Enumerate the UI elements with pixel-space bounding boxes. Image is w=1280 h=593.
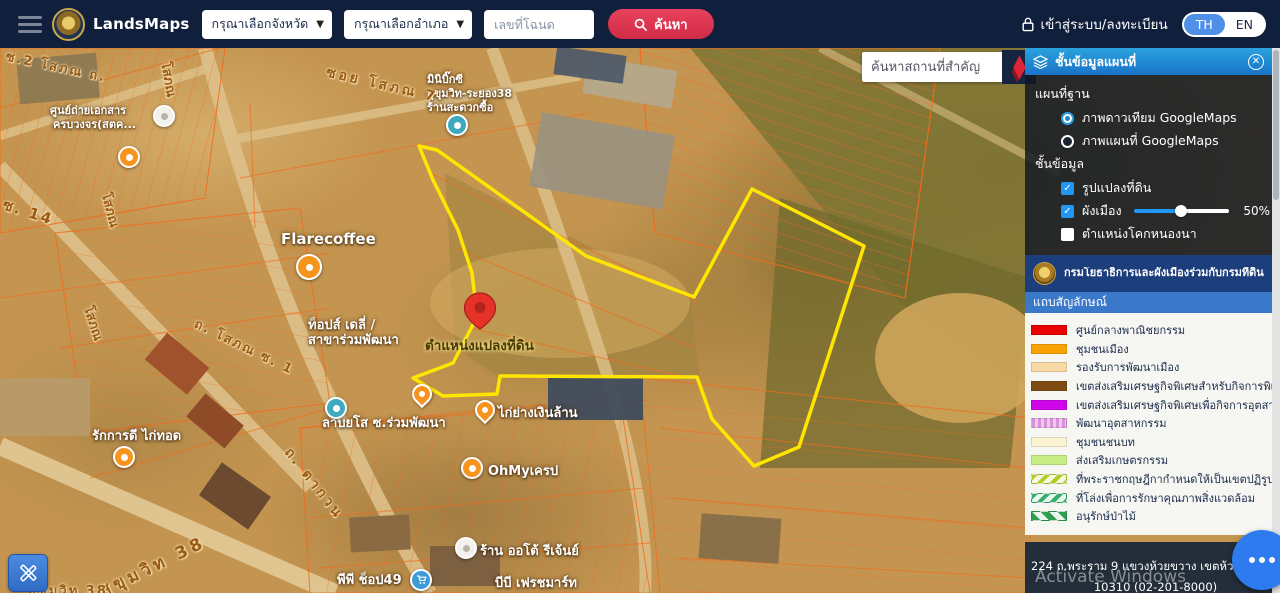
legend-row: อนุรักษ์ป่าไม้ — [1031, 507, 1274, 526]
legend-swatch — [1031, 400, 1067, 410]
app-title: LandsMaps — [93, 15, 190, 33]
legend-swatch — [1031, 418, 1067, 428]
panel-scrollbar[interactable] — [1272, 48, 1280, 593]
slider-thumb[interactable] — [1175, 205, 1187, 217]
cart-icon — [416, 575, 427, 585]
panel-body: แผนที่ฐาน ภาพดาวเทียม GoogleMaps ภาพแผนท… — [1025, 75, 1280, 255]
layers-icon — [1033, 55, 1048, 69]
legend-row: รองรับการพัฒนาเมือง — [1031, 358, 1274, 377]
deed-number-input[interactable] — [484, 10, 594, 39]
opacity-slider[interactable] — [1134, 209, 1230, 213]
crepe-shop-icon[interactable] — [461, 457, 483, 479]
legend-row: เขตส่งเสริมเศรษฐกิจพิเศษเพื่อกิจการอุตสา… — [1031, 395, 1274, 414]
checkbox-unchecked-icon[interactable] — [1061, 228, 1074, 241]
department-of-lands-logo — [52, 8, 85, 41]
province-select[interactable]: กรุณาเลือกจังหวัด ▼ — [202, 10, 332, 39]
legend-row: ศูนย์กลางพาณิชยกรรม — [1031, 321, 1274, 340]
login-register-link[interactable]: เข้าสู่ระบบ/ลงทะเบียน — [1021, 13, 1168, 35]
legend-row: เขตส่งเสริมเศรษฐกิจพิเศษสำหรับกิจการพิเศ… — [1031, 377, 1274, 396]
legend-swatch — [1031, 344, 1067, 354]
legend-list: ศูนย์กลางพาณิชยกรรม ชุมชนเมือง รองรับการ… — [1025, 313, 1280, 535]
menu-icon[interactable] — [18, 16, 42, 33]
lang-en-button[interactable]: EN — [1225, 14, 1264, 35]
legend-heading: แถบสัญลักษณ์ — [1025, 292, 1280, 313]
poi-label: ไก่ย่างเงินล้าน — [498, 402, 578, 423]
poi-label: OhMyเครป — [488, 460, 558, 481]
language-toggle: TH EN — [1182, 12, 1266, 37]
checkbox-checked-icon[interactable]: ✓ — [1061, 182, 1074, 195]
coffee-shop-icon[interactable] — [296, 254, 322, 280]
legend-swatch — [1031, 362, 1067, 372]
auto-shop-icon[interactable] — [455, 537, 477, 559]
supermarket-icon[interactable] — [325, 397, 347, 419]
chevron-down-icon: ▼ — [316, 19, 324, 30]
marker-label: ตำแหน่งแปลงที่ดิน — [425, 334, 534, 356]
legend-row: ที่โล่งเพื่อการรักษาคุณภาพสิ่งแวดล้อม — [1031, 488, 1274, 507]
base-map-option-map[interactable]: ภาพแผนที่ GoogleMaps — [1061, 131, 1270, 151]
copy-shop-icon[interactable] — [153, 105, 175, 127]
layer-option-parcels[interactable]: ✓ รูปแปลงที่ดิน — [1061, 178, 1270, 198]
layer-option-khok-nong-na[interactable]: ตำแหน่งโคกหนองนา — [1061, 224, 1270, 244]
legend-swatch — [1031, 493, 1067, 503]
banner-text: กรมโยธาธิการและผังเมืองร่วมกับกรมที่ดิน — [1064, 267, 1264, 280]
legend-swatch — [1031, 381, 1067, 391]
legend-swatch — [1031, 325, 1067, 335]
layer-option-city-plan[interactable]: ✓ ผังเมือง 50% — [1061, 201, 1270, 221]
fried-chicken-icon[interactable] — [113, 446, 135, 468]
radio-selected-icon[interactable] — [1061, 112, 1074, 125]
legend-swatch — [1031, 474, 1067, 484]
poi-label: ร้านสะดวกซื้อ — [427, 98, 493, 116]
legend-row: ชุมชนเมือง — [1031, 340, 1274, 359]
restaurant-icon[interactable] — [118, 146, 140, 168]
legend-swatch — [1031, 511, 1067, 521]
poi-label: สาขาร่วมพัฒนา — [308, 329, 399, 350]
shop-cart-icon[interactable] — [410, 569, 432, 591]
department-banner: กรมโยธาธิการและผังเมืองร่วมกับกรมที่ดิน — [1025, 255, 1280, 292]
poi-label: พีพี ช็อป49 — [337, 569, 402, 590]
legend-row: พัฒนาอุตสาหกรรม — [1031, 414, 1274, 433]
panel-title: ชั้นข้อมูลแผนที่ — [1055, 52, 1241, 72]
search-button[interactable]: ค้นหา — [608, 9, 713, 39]
convenience-store-icon[interactable] — [446, 114, 468, 136]
lock-icon — [1021, 16, 1035, 32]
close-icon[interactable]: ✕ — [1248, 54, 1264, 70]
poi-label: บีบี เฟรชมาร์ท — [495, 572, 577, 593]
chevron-down-icon: ▼ — [456, 19, 464, 30]
base-map-heading: แผนที่ฐาน — [1035, 84, 1270, 104]
measure-tool-button[interactable] — [8, 554, 48, 592]
measure-tools-icon — [17, 562, 39, 584]
lang-th-button[interactable]: TH — [1184, 14, 1225, 35]
layers-diamond-icon — [1013, 55, 1025, 79]
radio-unselected-icon[interactable] — [1061, 135, 1074, 148]
panel-header: ชั้นข้อมูลแผนที่ ✕ — [1025, 48, 1280, 75]
legend-row: ที่พระราชกฤษฎีกากำหนดให้เป็นเขตปฏิรูปที่… — [1031, 470, 1274, 489]
map-layers-panel: ชั้นข้อมูลแผนที่ ✕ แผนที่ฐาน ภาพดาวเทียม… — [1025, 48, 1280, 593]
legend-row: ส่งเสริมเกษตรกรรม — [1031, 451, 1274, 470]
poi-label: ครบวงจร(สตค... — [53, 115, 136, 133]
poi-label: Flarecoffee — [281, 230, 376, 248]
legend-swatch — [1031, 455, 1067, 465]
district-select[interactable]: กรุณาเลือกอำเภอ ▼ — [344, 10, 472, 39]
search-icon — [634, 18, 647, 31]
checkbox-checked-icon[interactable]: ✓ — [1061, 205, 1074, 218]
base-map-option-satellite[interactable]: ภาพดาวเทียม GoogleMaps — [1061, 108, 1270, 128]
legend-row: ชุมชนชนบท — [1031, 433, 1274, 452]
opacity-value: 50% — [1243, 204, 1270, 218]
poi-label: ร้าน ออโต้ รีเจ้นย์ — [480, 540, 579, 561]
legend-swatch — [1031, 437, 1067, 447]
poi-label: รักการดี ไก่ทอด — [92, 425, 181, 446]
scrollbar-thumb[interactable] — [1273, 50, 1279, 200]
map-place-search-input[interactable] — [862, 52, 1002, 82]
layers-heading: ชั้นข้อมูล — [1035, 154, 1270, 174]
top-navigation-bar: LandsMaps กรุณาเลือกจังหวัด ▼ กรุณาเลือก… — [0, 0, 1280, 48]
department-emblem-icon — [1033, 262, 1056, 285]
